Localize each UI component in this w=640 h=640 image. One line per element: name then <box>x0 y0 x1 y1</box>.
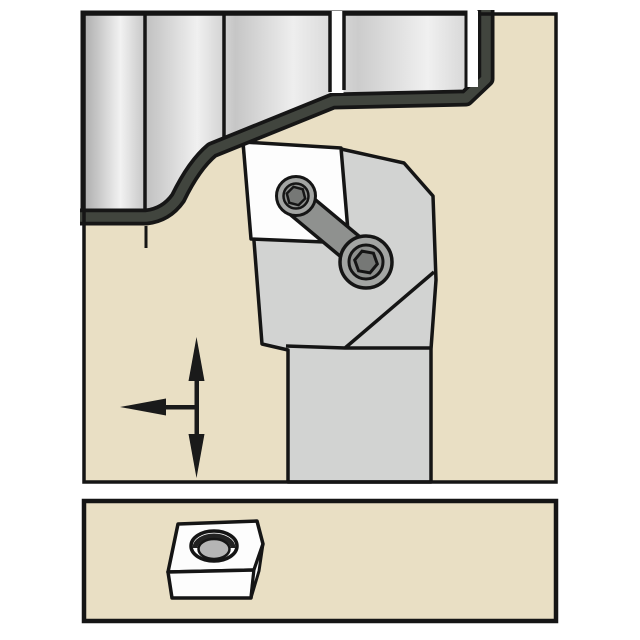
insert-screw-icon <box>277 177 316 216</box>
horizontal-arrow-shaft <box>164 405 198 410</box>
insert-front-face <box>168 570 254 598</box>
workpiece-groove-2 <box>468 11 479 87</box>
insert-hole <box>199 539 230 559</box>
insert-panel-frame <box>84 501 556 621</box>
workpiece-groove-1 <box>331 11 344 93</box>
insert-3d-view <box>168 521 263 598</box>
insert-panel <box>84 501 556 621</box>
tool-application-illustration <box>0 0 640 640</box>
clamp-screw-icon <box>340 236 392 288</box>
application-panel <box>80 10 556 482</box>
diagram-stage <box>0 0 640 640</box>
